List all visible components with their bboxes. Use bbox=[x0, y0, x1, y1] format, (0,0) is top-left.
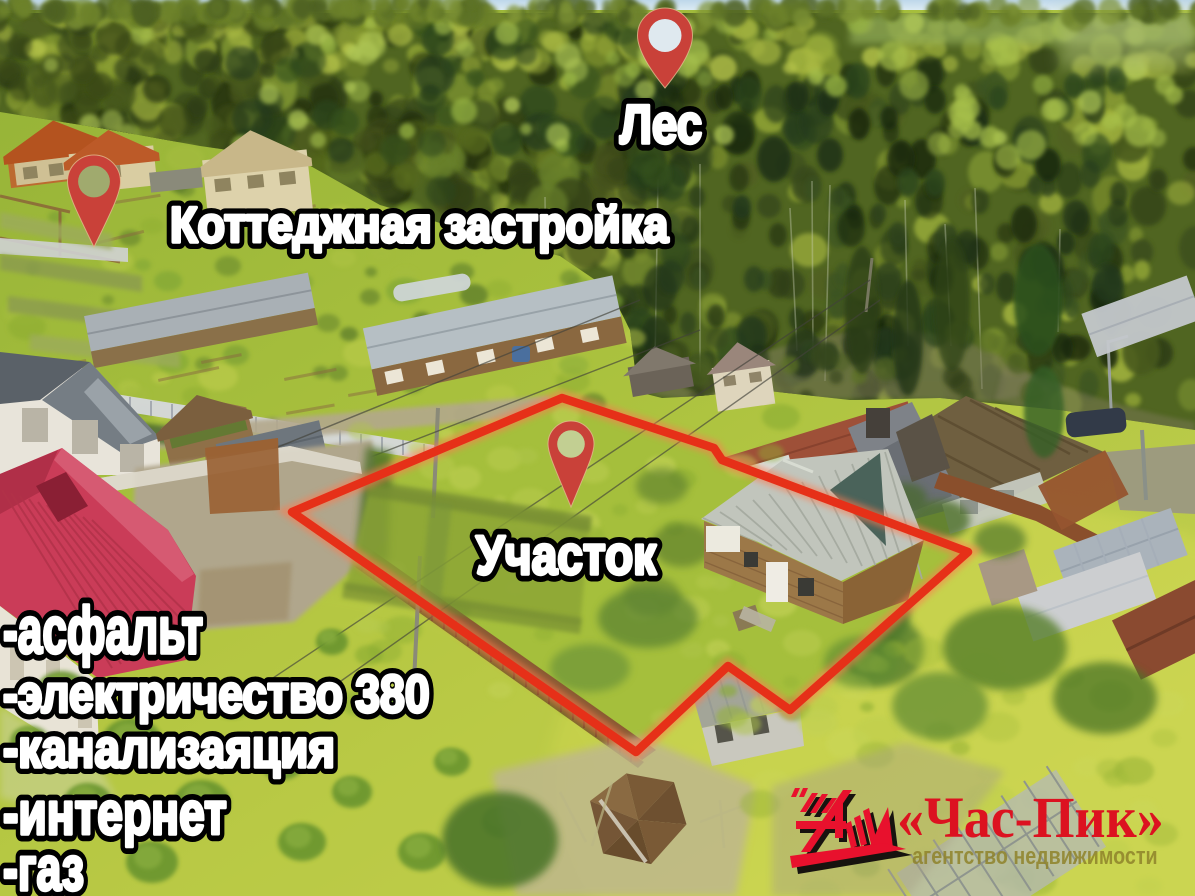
svg-text:агентство недвижимости: агентство недвижимости bbox=[912, 842, 1157, 869]
svg-text:Участок: Участок bbox=[476, 524, 657, 586]
svg-text:Лес: Лес bbox=[620, 93, 702, 155]
svg-text:-канализаяция: -канализаяция bbox=[3, 719, 335, 779]
svg-text:Коттеджная застройка: Коттеджная застройка bbox=[170, 198, 669, 254]
svg-text:-газ: -газ bbox=[3, 835, 84, 896]
svg-text:-асфальт: -асфальт bbox=[3, 593, 203, 667]
svg-text:-электричество 380: -электричество 380 bbox=[3, 665, 430, 723]
svg-text:«Час-Пик»: «Час-Пик» bbox=[897, 786, 1163, 850]
